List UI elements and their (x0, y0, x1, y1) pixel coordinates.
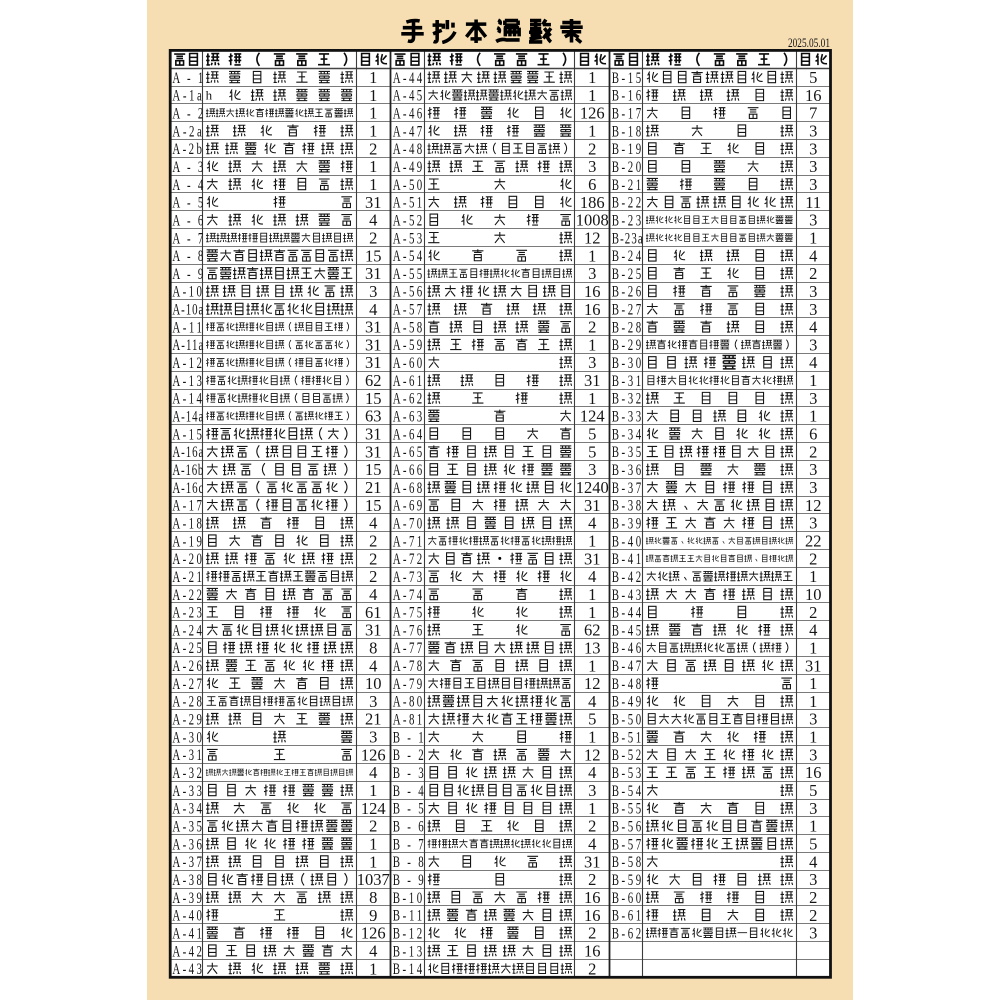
svg-text:3: 3 (809, 122, 817, 141)
svg-text:3: 3 (588, 157, 596, 176)
svg-text:A-16b: A-16b (172, 461, 203, 479)
svg-text:4: 4 (809, 318, 817, 337)
svg-text:2: 2 (369, 139, 377, 158)
svg-text:3: 3 (809, 300, 817, 319)
svg-text:3: 3 (809, 924, 817, 943)
svg-text:6: 6 (588, 175, 596, 194)
svg-text:A - 4: A - 4 (172, 176, 203, 194)
svg-text:16: 16 (584, 906, 601, 925)
svg-text:31: 31 (584, 496, 601, 515)
svg-text:4: 4 (588, 763, 596, 782)
svg-text:1: 1 (809, 638, 817, 657)
svg-text:62: 62 (365, 371, 382, 390)
svg-text:16: 16 (584, 888, 601, 907)
svg-text:B - 5: B - 5 (393, 800, 424, 818)
svg-text:1: 1 (369, 157, 377, 176)
svg-text:124: 124 (580, 407, 605, 426)
svg-text:1: 1 (809, 407, 817, 426)
svg-text:A-16c: A-16c (172, 479, 203, 497)
svg-text:B - 9: B - 9 (393, 871, 424, 889)
svg-text:4: 4 (369, 763, 377, 782)
svg-text:1: 1 (369, 959, 377, 978)
svg-text:21: 21 (365, 710, 382, 729)
svg-text:4: 4 (369, 211, 377, 230)
svg-text:31: 31 (365, 264, 382, 283)
svg-text:3: 3 (588, 264, 596, 283)
svg-text:1: 1 (369, 86, 377, 105)
svg-text:1240: 1240 (576, 478, 609, 497)
svg-text:1: 1 (369, 852, 377, 871)
svg-text:A-11a: A-11a (172, 336, 203, 354)
svg-text:16: 16 (805, 86, 822, 105)
svg-text:8: 8 (369, 888, 377, 907)
svg-text:31: 31 (584, 371, 601, 390)
svg-text:3: 3 (369, 282, 377, 301)
svg-text:2: 2 (588, 139, 596, 158)
svg-text:15: 15 (365, 496, 382, 515)
svg-text:5: 5 (809, 68, 817, 87)
svg-text:1: 1 (588, 86, 596, 105)
svg-text:2: 2 (809, 603, 817, 622)
svg-text:1: 1 (369, 104, 377, 123)
svg-text:3: 3 (369, 692, 377, 711)
svg-text:B - 4: B - 4 (393, 782, 424, 800)
svg-text:1: 1 (588, 656, 596, 675)
svg-text:1: 1 (809, 728, 817, 747)
svg-text:3: 3 (809, 139, 817, 158)
svg-text:1: 1 (369, 175, 377, 194)
svg-text:12: 12 (584, 229, 601, 248)
svg-text:6: 6 (809, 425, 817, 444)
svg-text:1008: 1008 (576, 211, 609, 230)
svg-text:22: 22 (805, 532, 822, 551)
svg-text:63: 63 (365, 407, 382, 426)
svg-text:B - 3: B - 3 (393, 764, 424, 782)
svg-text:16: 16 (584, 282, 601, 301)
svg-text:3: 3 (809, 870, 817, 889)
svg-text:126: 126 (361, 745, 386, 764)
svg-text:1: 1 (588, 389, 596, 408)
svg-text:16: 16 (584, 942, 601, 961)
svg-text:3: 3 (809, 211, 817, 230)
svg-text:61: 61 (365, 603, 382, 622)
svg-text:3: 3 (588, 353, 596, 372)
svg-text:31: 31 (365, 425, 382, 444)
svg-text:16: 16 (584, 300, 601, 319)
svg-text:A - 1: A - 1 (172, 69, 203, 87)
svg-text:3: 3 (809, 282, 817, 301)
svg-text:15: 15 (365, 246, 382, 265)
svg-text:B - 1: B - 1 (393, 728, 424, 746)
svg-text:1: 1 (809, 567, 817, 586)
svg-text:2: 2 (809, 888, 817, 907)
svg-text:1: 1 (588, 585, 596, 604)
svg-text:4: 4 (588, 692, 596, 711)
svg-text:31: 31 (365, 442, 382, 461)
svg-text:3: 3 (809, 335, 817, 354)
svg-text:31: 31 (805, 656, 822, 675)
svg-text:2025.05.01: 2025.05.01 (788, 36, 830, 50)
svg-text:5: 5 (809, 781, 817, 800)
svg-text:1: 1 (588, 603, 596, 622)
svg-text:4: 4 (588, 514, 596, 533)
svg-text:4: 4 (369, 300, 377, 319)
svg-text:3: 3 (809, 460, 817, 479)
svg-text:2: 2 (588, 817, 596, 836)
svg-text:31: 31 (365, 193, 382, 212)
svg-text:10: 10 (805, 585, 822, 604)
svg-text:3: 3 (809, 157, 817, 176)
svg-text:21: 21 (365, 478, 382, 497)
svg-text:16: 16 (805, 763, 822, 782)
svg-text:5: 5 (588, 425, 596, 444)
svg-text:3: 3 (809, 389, 817, 408)
svg-text:2: 2 (369, 229, 377, 248)
svg-text:1: 1 (588, 532, 596, 551)
svg-text:3: 3 (588, 460, 596, 479)
svg-text:3: 3 (809, 710, 817, 729)
svg-text:31: 31 (365, 318, 382, 337)
svg-text:1: 1 (809, 674, 817, 693)
svg-text:A - 8: A - 8 (172, 247, 203, 265)
svg-text:4: 4 (809, 621, 817, 640)
svg-text:2: 2 (809, 549, 817, 568)
svg-text:4: 4 (369, 585, 377, 604)
svg-text:B - 6: B - 6 (393, 817, 424, 835)
svg-text:1: 1 (588, 728, 596, 747)
svg-text:A - 7: A - 7 (172, 229, 203, 247)
svg-text:4: 4 (369, 942, 377, 961)
svg-text:1: 1 (809, 229, 817, 248)
svg-text:2: 2 (809, 264, 817, 283)
svg-text:1: 1 (369, 781, 377, 800)
svg-text:1: 1 (809, 817, 817, 836)
svg-text:2: 2 (809, 906, 817, 925)
svg-text:1: 1 (809, 692, 817, 711)
svg-text:3: 3 (809, 799, 817, 818)
svg-text:4: 4 (809, 353, 817, 372)
svg-text:31: 31 (365, 335, 382, 354)
svg-text:B-23a: B-23a (612, 229, 643, 247)
svg-text:11: 11 (805, 193, 821, 212)
svg-text:1037: 1037 (357, 870, 390, 889)
svg-text:A-10a: A-10a (172, 301, 203, 319)
svg-text:1: 1 (588, 335, 596, 354)
svg-text:124: 124 (361, 799, 386, 818)
svg-text:2: 2 (588, 959, 596, 978)
svg-text:B - 7: B - 7 (393, 835, 424, 853)
svg-text:2: 2 (588, 870, 596, 889)
svg-text:126: 126 (580, 104, 605, 123)
svg-text:A - 3: A - 3 (172, 158, 203, 176)
svg-text:12: 12 (584, 745, 601, 764)
svg-text:10: 10 (365, 674, 382, 693)
svg-text:1: 1 (588, 122, 596, 141)
svg-text:5: 5 (809, 835, 817, 854)
svg-text:62: 62 (584, 621, 601, 640)
svg-text:4: 4 (369, 514, 377, 533)
svg-text:A - 5: A - 5 (172, 194, 203, 212)
svg-text:4: 4 (369, 656, 377, 675)
svg-text:12: 12 (805, 496, 822, 515)
svg-text:B - 8: B - 8 (393, 853, 424, 871)
svg-text:4: 4 (588, 835, 596, 854)
svg-text:A - 2: A - 2 (172, 104, 203, 122)
svg-text:12: 12 (584, 674, 601, 693)
svg-text:3: 3 (809, 175, 817, 194)
svg-text:A - 9: A - 9 (172, 265, 203, 283)
svg-text:1: 1 (588, 246, 596, 265)
svg-text:3: 3 (809, 514, 817, 533)
svg-text:8: 8 (369, 638, 377, 657)
svg-text:1: 1 (809, 371, 817, 390)
svg-text:31: 31 (584, 549, 601, 568)
svg-text:9: 9 (369, 906, 377, 925)
svg-text:1: 1 (588, 68, 596, 87)
svg-text:186: 186 (580, 193, 605, 212)
svg-text:2: 2 (369, 817, 377, 836)
svg-text:1: 1 (369, 68, 377, 87)
svg-text:2: 2 (809, 442, 817, 461)
svg-text:13: 13 (584, 638, 601, 657)
svg-text:5: 5 (588, 710, 596, 729)
svg-text:31: 31 (584, 852, 601, 871)
svg-text:4: 4 (809, 246, 817, 265)
svg-text:1: 1 (369, 122, 377, 141)
svg-text:B - 2: B - 2 (393, 746, 424, 764)
svg-text:1: 1 (369, 835, 377, 854)
svg-text:4: 4 (809, 852, 817, 871)
svg-text:5: 5 (588, 442, 596, 461)
svg-text:2: 2 (369, 532, 377, 551)
svg-text:h: h (206, 88, 213, 103)
svg-text:A - 6: A - 6 (172, 211, 203, 229)
svg-text:3: 3 (369, 728, 377, 747)
svg-text:15: 15 (365, 460, 382, 479)
svg-text:2: 2 (369, 549, 377, 568)
svg-text:7: 7 (809, 104, 817, 123)
svg-text:3: 3 (588, 781, 596, 800)
svg-text:2: 2 (588, 318, 596, 337)
svg-text:31: 31 (365, 353, 382, 372)
svg-text:A-16a: A-16a (172, 443, 203, 461)
svg-text:3: 3 (809, 478, 817, 497)
svg-text:3: 3 (809, 745, 817, 764)
svg-text:15: 15 (365, 389, 382, 408)
svg-text:126: 126 (361, 924, 386, 943)
svg-text:2: 2 (369, 567, 377, 586)
svg-text:31: 31 (365, 621, 382, 640)
svg-text:4: 4 (588, 567, 596, 586)
svg-text:1: 1 (588, 799, 596, 818)
svg-text:A-14a: A-14a (172, 407, 203, 425)
svg-text:2: 2 (588, 924, 596, 943)
